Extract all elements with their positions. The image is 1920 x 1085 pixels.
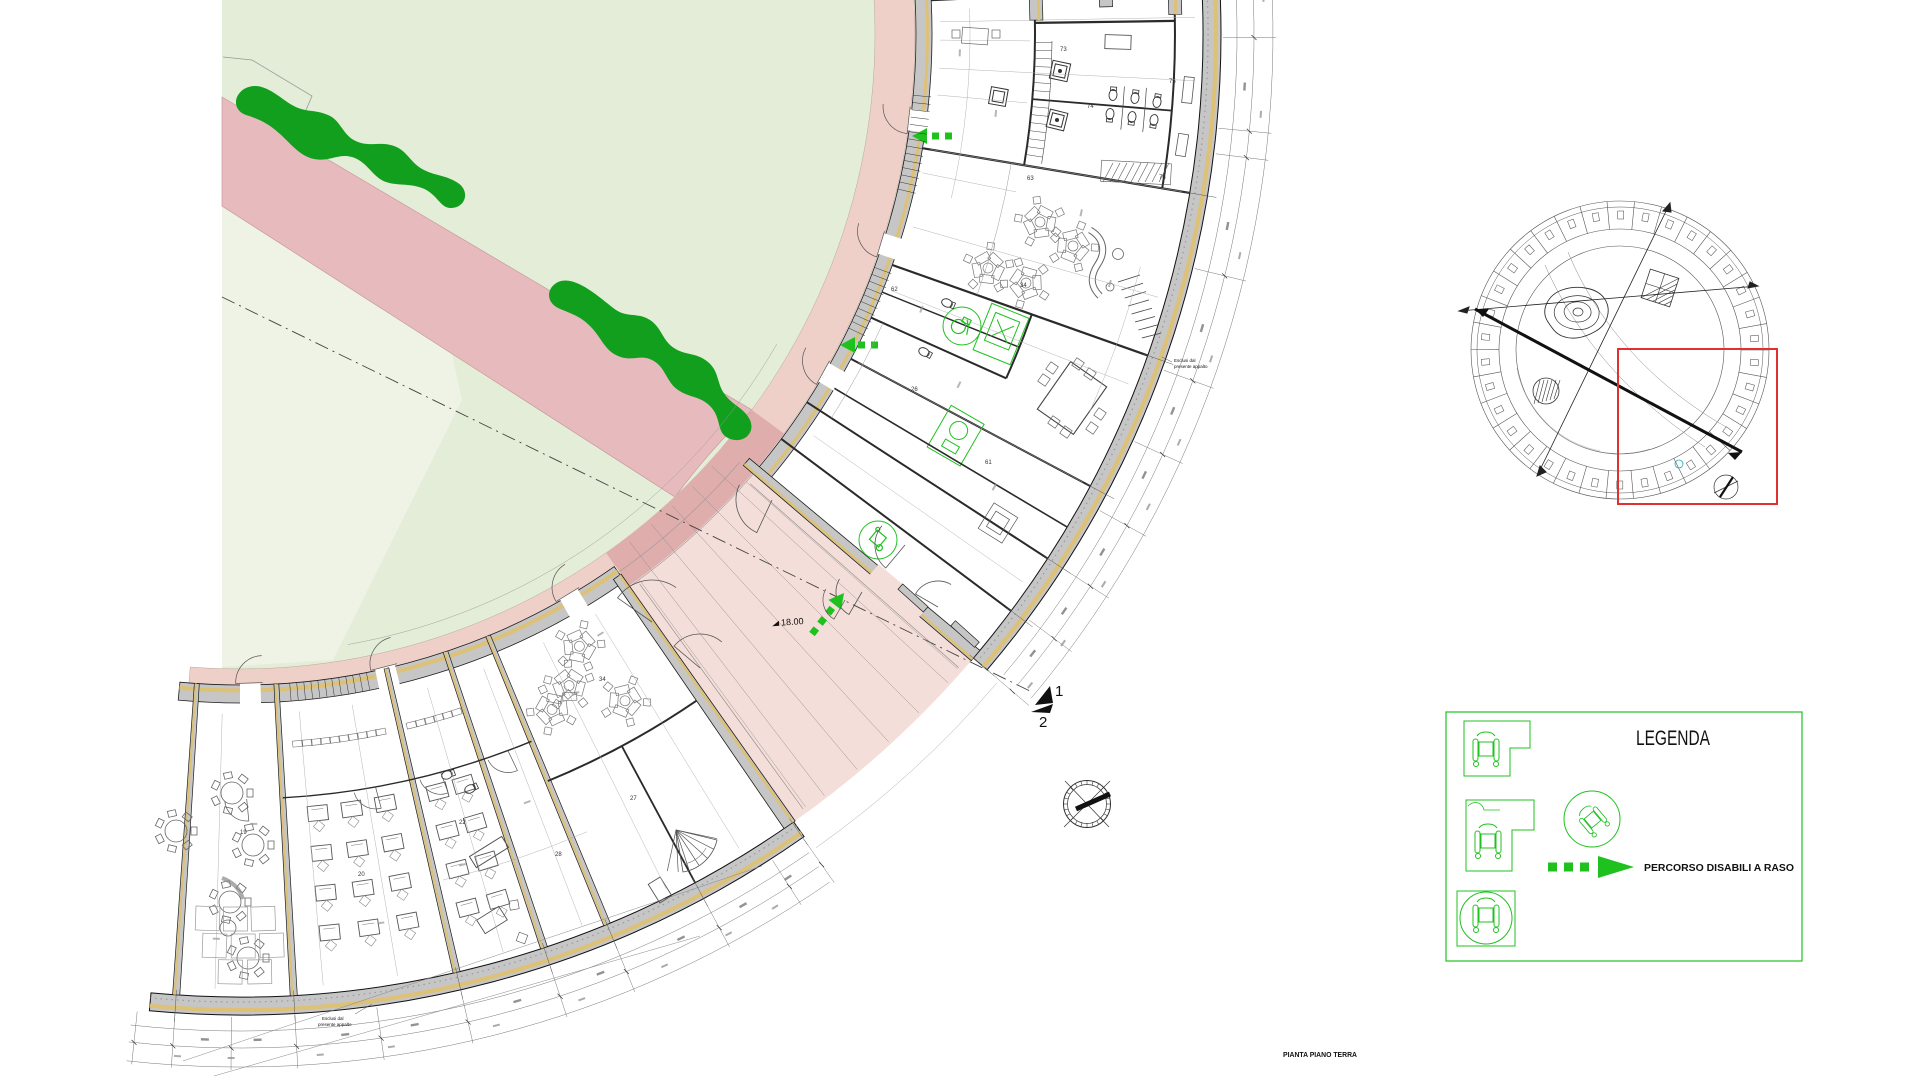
- svg-text:Esclusi dal: Esclusi dal: [322, 1016, 344, 1021]
- svg-text:18.00: 18.00: [781, 616, 804, 628]
- svg-text:75: 75: [1169, 79, 1176, 85]
- svg-text:63: 63: [1027, 176, 1034, 182]
- svg-text:34: 34: [1020, 283, 1027, 289]
- svg-text:34: 34: [599, 677, 606, 683]
- svg-text:26: 26: [911, 387, 918, 393]
- svg-text:PIANTA PIANO TERRA: PIANTA PIANO TERRA: [1283, 1050, 1358, 1059]
- svg-text:Esclusi dal: Esclusi dal: [1174, 358, 1196, 363]
- svg-text:28: 28: [555, 852, 562, 858]
- svg-text:LEGENDA: LEGENDA: [1636, 727, 1710, 750]
- svg-text:presente appalto: presente appalto: [318, 1022, 352, 1027]
- svg-text:22: 22: [459, 820, 466, 826]
- svg-text:73: 73: [1060, 47, 1067, 53]
- svg-text:74: 74: [1087, 104, 1094, 110]
- svg-text:1: 1: [1055, 683, 1063, 700]
- svg-text:61: 61: [985, 460, 992, 466]
- svg-text:presente appalto: presente appalto: [1174, 364, 1208, 369]
- svg-text:62: 62: [891, 287, 898, 293]
- svg-text:19: 19: [240, 830, 247, 836]
- svg-text:27: 27: [630, 796, 637, 802]
- svg-text:PERCORSO DISABILI A RASO: PERCORSO DISABILI A RASO: [1644, 862, 1794, 874]
- svg-text:20: 20: [358, 872, 365, 878]
- svg-text:2: 2: [1039, 714, 1047, 731]
